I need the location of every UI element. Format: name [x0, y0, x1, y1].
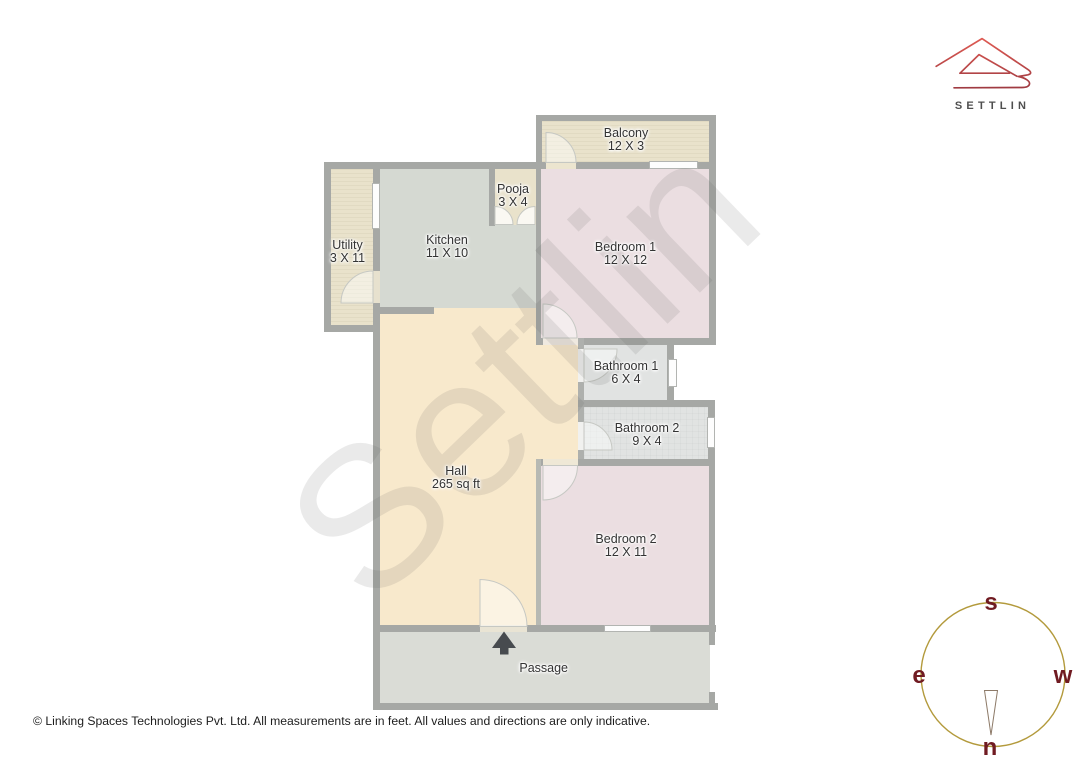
svg-text:e: e	[912, 662, 925, 689]
svg-text:s: s	[984, 592, 997, 616]
svg-text:w: w	[1053, 662, 1073, 689]
svg-text:n: n	[983, 734, 998, 761]
svg-text:SETTLIN: SETTLIN	[955, 100, 1030, 112]
svg-text:Settlin: Settlin	[245, 95, 800, 642]
